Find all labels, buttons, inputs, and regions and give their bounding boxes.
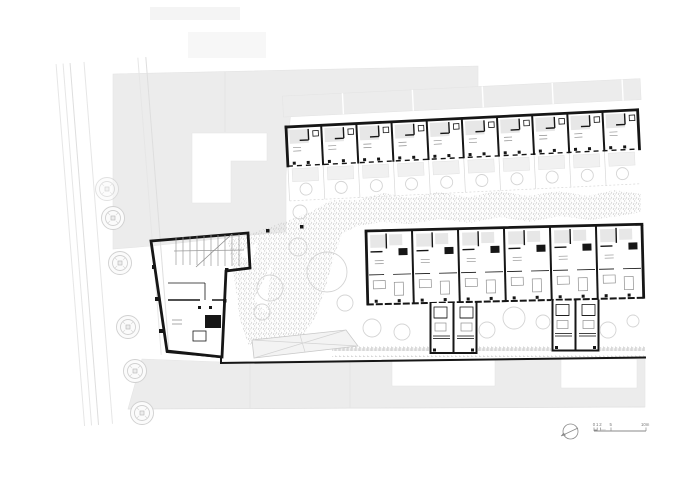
site-plan-page: 0 1 2 5 10m	[0, 0, 700, 495]
patio-wing-east	[551, 301, 600, 352]
north-building-row	[282, 79, 645, 201]
elevator-core	[205, 315, 221, 328]
street-tree	[131, 402, 154, 425]
scale-label: 5	[610, 422, 613, 427]
street-tree	[102, 207, 125, 230]
apartment-unit	[602, 110, 638, 185]
street-tree	[96, 178, 119, 201]
apartment-unit	[497, 115, 533, 190]
apartment-unit	[532, 113, 568, 188]
apartment-unit	[427, 119, 463, 194]
site-plan-drawing: 0 1 2 5 10m	[0, 0, 700, 495]
street-tree	[109, 252, 132, 275]
street-tree	[124, 360, 147, 383]
apartment-unit	[286, 125, 322, 200]
apartment-unit	[462, 117, 498, 192]
street-tree	[117, 316, 140, 339]
apartment-unit	[356, 122, 392, 197]
south-building-slab	[366, 224, 644, 305]
scale-label: 10m	[641, 422, 650, 427]
scale-label: 2	[599, 422, 602, 427]
patio-wing-west	[429, 303, 478, 354]
north-arrow-icon	[561, 424, 578, 439]
south-neighbor-block	[128, 357, 645, 409]
apartment-unit	[391, 120, 427, 195]
scale-bar: 0 1 2 5 10m	[593, 422, 650, 431]
apartment-unit	[321, 124, 357, 199]
apartment-unit	[567, 112, 603, 187]
